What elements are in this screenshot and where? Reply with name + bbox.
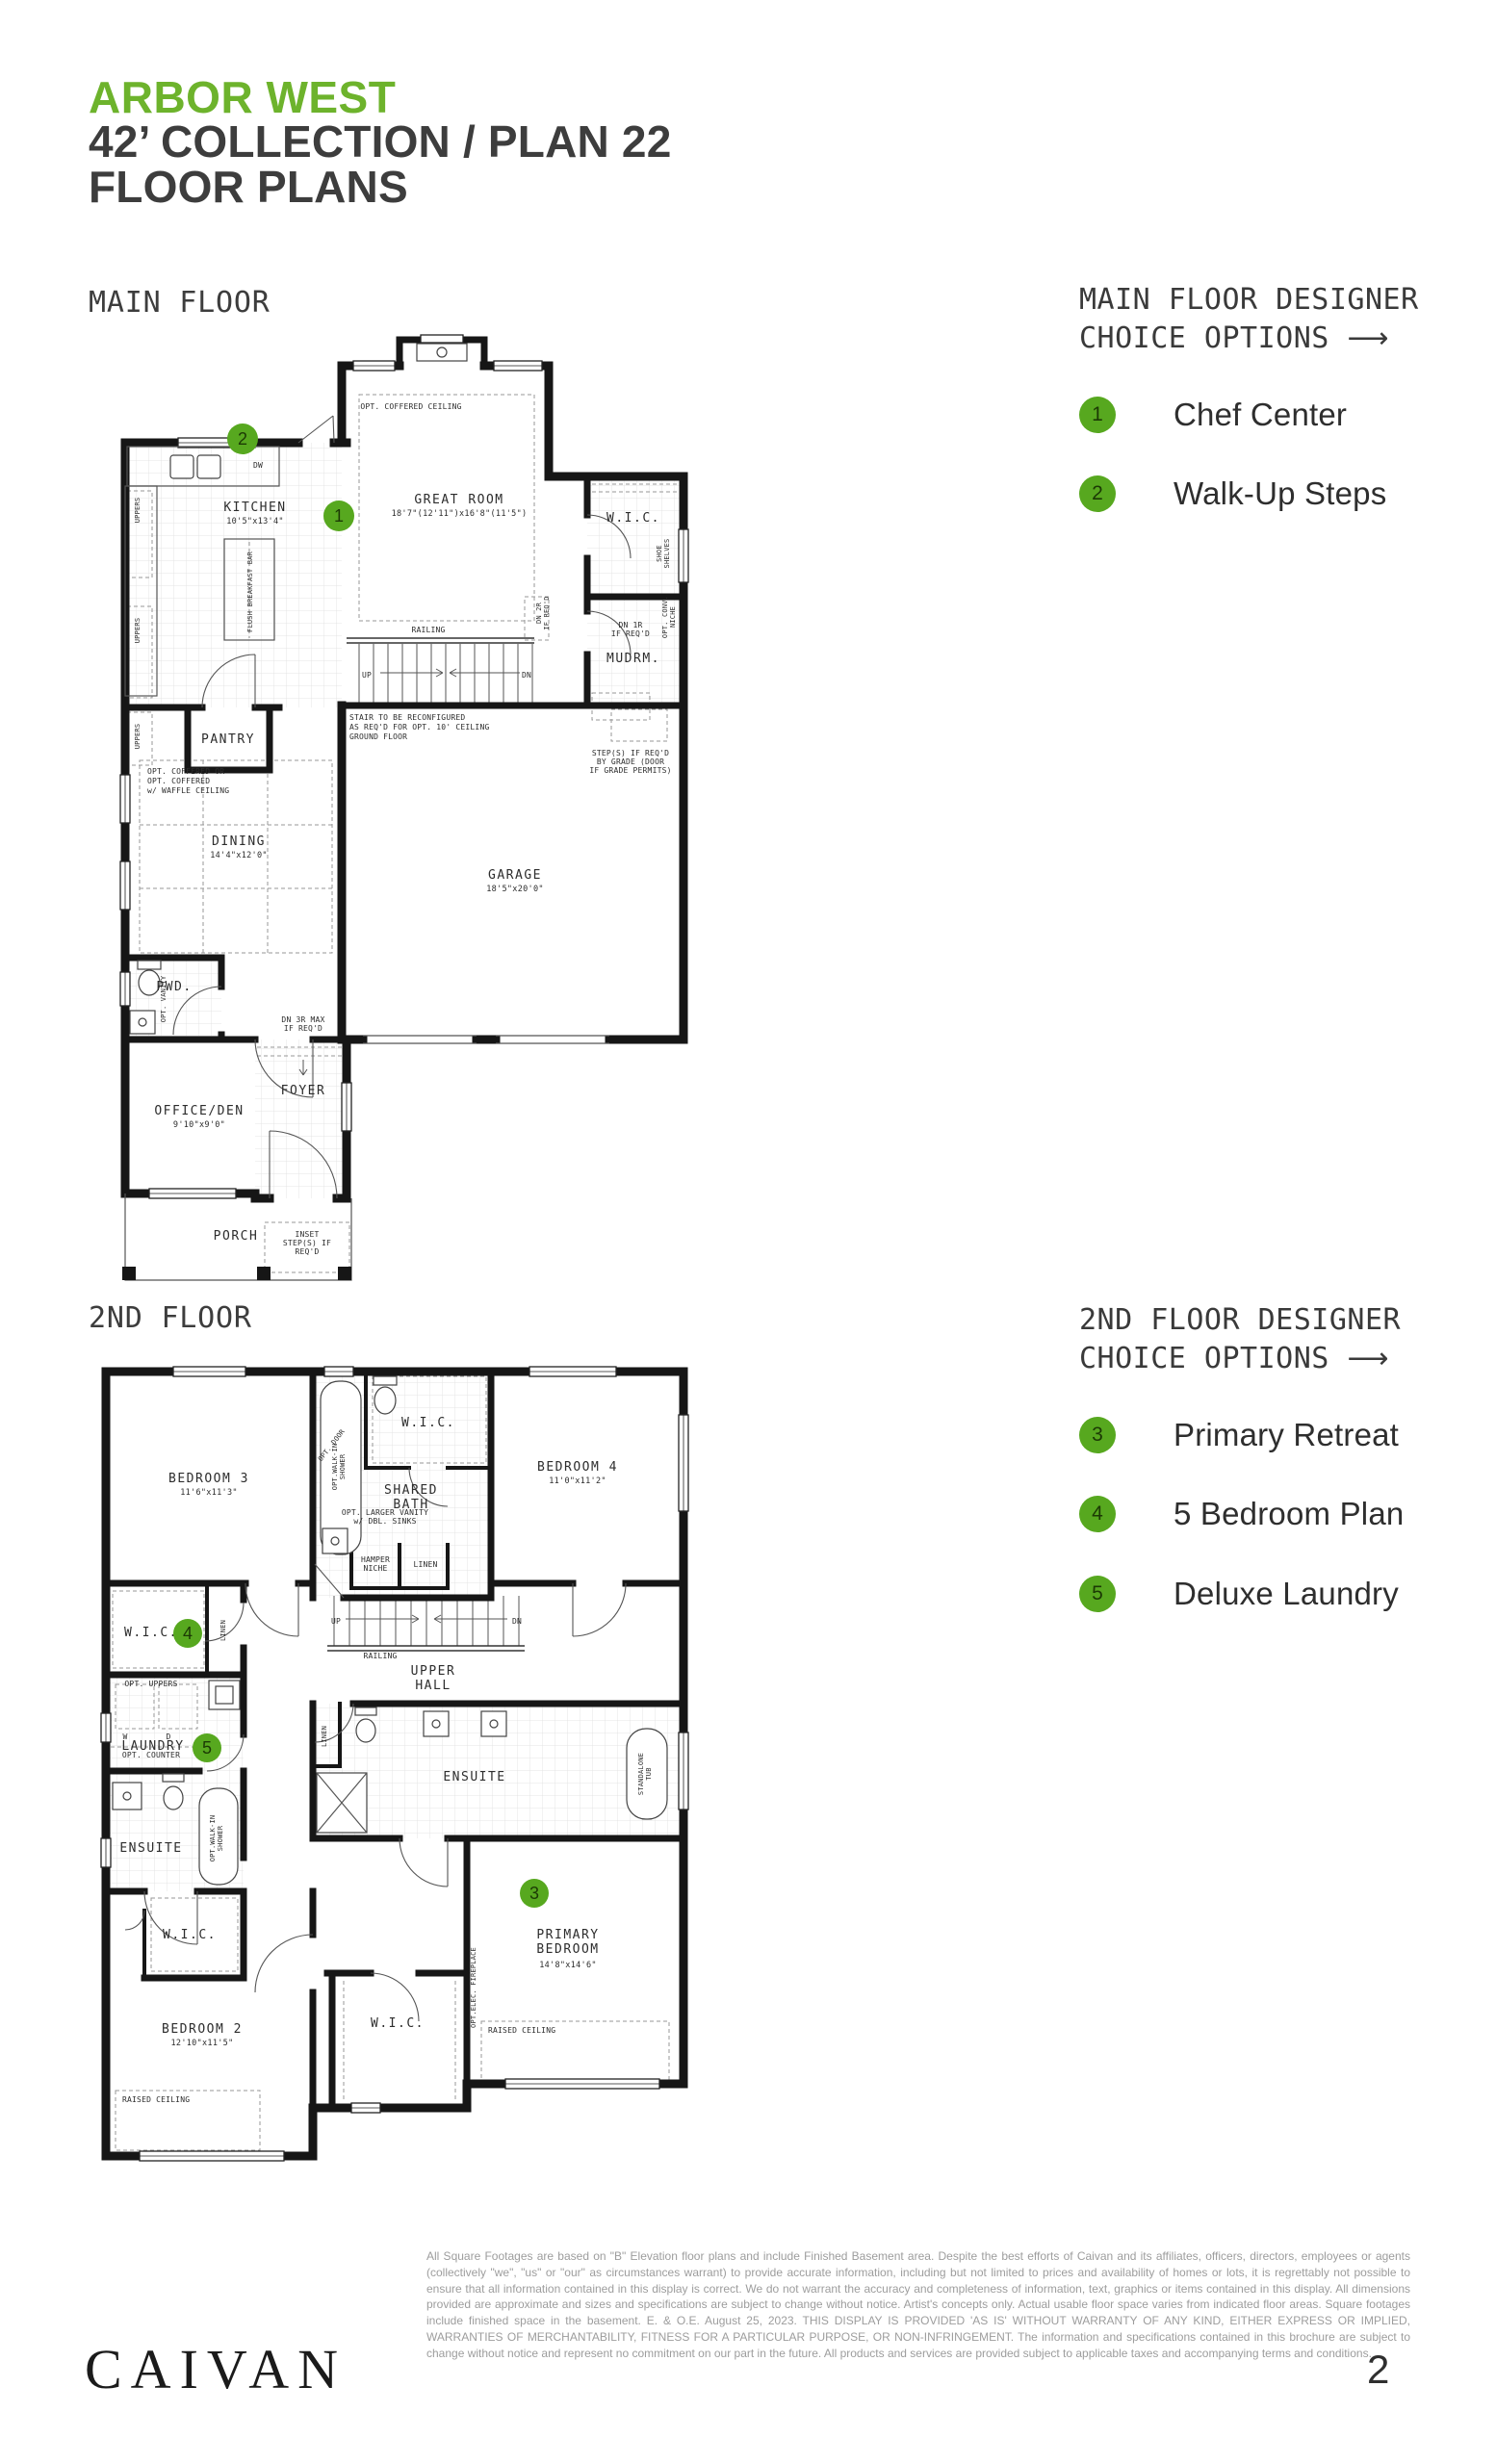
room-label: W.I.C.	[124, 1626, 178, 1640]
vert-label: LINEN	[219, 1620, 227, 1641]
option-marker: 2	[227, 423, 258, 454]
option-number-badge: 4	[1079, 1496, 1116, 1532]
room-label: UPPERHALL	[411, 1664, 456, 1693]
note-label: LINEN	[413, 1560, 437, 1569]
note-label: OPT. LARGER VANITYw/ DBL. SINKS	[342, 1508, 428, 1526]
dim-label: 10'5"x13'4"	[226, 517, 284, 526]
option-label: Chef Center	[1174, 397, 1347, 433]
room-label: BEDROOM 2	[162, 2022, 243, 2037]
room-label: BEDROOM 4	[537, 1460, 618, 1475]
option-marker-number: 2	[238, 429, 247, 449]
page-number: 2	[1367, 2347, 1389, 2393]
option-marker: 4	[173, 1619, 202, 1648]
room-label: W.I.C.	[401, 1416, 455, 1430]
second-floor-plan: BEDROOM 311'6"x11'3"BEDROOM 411'0"x11'2"…	[91, 1357, 698, 2194]
option-number-badge: 1	[1079, 397, 1116, 433]
room-label: PRIMARYBEDROOM	[536, 1928, 599, 1957]
room-label: W.I.C.	[163, 1928, 217, 1942]
page-title: FLOOR PLANS	[89, 165, 671, 210]
room-label: OFFICE/DEN	[154, 1104, 244, 1118]
room-label: GREAT ROOM	[414, 493, 503, 507]
note-label: UP	[331, 1617, 341, 1626]
main-options-heading-line2: CHOICE OPTIONS	[1079, 321, 1329, 355]
note-label: RAILING	[411, 626, 445, 634]
option-number-badge: 3	[1079, 1417, 1116, 1453]
second-options-heading: 2ND FLOOR DESIGNER CHOICE OPTIONS ⟶	[1079, 1301, 1493, 1378]
arrow-icon: ⟶	[1347, 321, 1389, 355]
dim-label: 18'7"(12'11")x16'8"(11'5")	[392, 509, 528, 519]
room-label: PORCH	[214, 1229, 259, 1244]
room-label: ENSUITE	[443, 1770, 505, 1784]
dim-label: 9'10"x9'0"	[173, 1120, 225, 1130]
note-label: HAMPERNICHE	[361, 1555, 390, 1573]
option-label: Deluxe Laundry	[1174, 1576, 1399, 1612]
dim-label: 12'10"x11'5"	[170, 2039, 233, 2048]
room-label: W.I.C.	[371, 2016, 425, 2031]
note-label: STAIR TO BE RECONFIGUREDAS REQ'D FOR OPT…	[349, 713, 489, 741]
room-label: ENSUITE	[119, 1841, 182, 1856]
room-label: FOYER	[281, 1084, 326, 1098]
second-options-heading-line2: CHOICE OPTIONS	[1079, 1342, 1329, 1375]
option-marker: 5	[193, 1733, 221, 1762]
vert-label: UPPERS	[134, 498, 142, 524]
room-label: KITCHEN	[223, 500, 286, 515]
note-label: UP	[362, 671, 372, 680]
option-row-5-bedroom-plan: 4 5 Bedroom Plan	[1079, 1496, 1404, 1532]
brand-name: ARBOR WEST	[89, 75, 671, 119]
note-label: RAISED CEILING	[122, 2095, 190, 2104]
note-label: OPT. COFFERED OROPT. COFFEREDw/ WAFFLE C…	[147, 767, 229, 795]
note-label: OPT. COFFERED CEILING	[360, 402, 461, 411]
dim-label: 11'6"x11'3"	[180, 1488, 238, 1498]
vert-label: UPPERS	[134, 724, 142, 750]
vert-label: OPT.ELEC. FIREPLACE	[470, 1947, 477, 2028]
note-label: DN	[512, 1617, 522, 1626]
second-floor-options: 2ND FLOOR DESIGNER CHOICE OPTIONS ⟶	[1079, 1301, 1493, 1378]
arrow-icon: ⟶	[1347, 1342, 1389, 1375]
room-label: PANTRY	[201, 732, 255, 747]
option-marker-number: 5	[202, 1738, 212, 1758]
main-floor-options: MAIN FLOOR DESIGNER CHOICE OPTIONS ⟶	[1079, 281, 1483, 358]
note-label: OPT. UPPERS	[124, 1680, 177, 1688]
note-label: DN 3R MAXIF REQ'D	[281, 1015, 324, 1033]
option-number-badge: 5	[1079, 1576, 1116, 1612]
option-marker: 3	[520, 1879, 549, 1908]
room-label: W.I.C.	[606, 511, 660, 526]
option-label: Primary Retreat	[1174, 1417, 1399, 1453]
option-row-walk-up-steps: 2 Walk-Up Steps	[1079, 475, 1386, 512]
option-row-primary-retreat: 3 Primary Retreat	[1079, 1417, 1399, 1453]
dim-label: 11'0"x11'2"	[549, 1476, 606, 1486]
note-label: INSETSTEP(S) IFREQ'D	[283, 1230, 331, 1256]
legal-disclaimer: All Square Footages are based on "B" Ele…	[426, 2248, 1410, 2362]
note-label: DN	[522, 671, 531, 680]
vert-label: LINEN	[321, 1726, 328, 1747]
option-marker-number: 1	[334, 506, 344, 526]
option-label: 5 Bedroom Plan	[1174, 1496, 1404, 1532]
option-row-deluxe-laundry: 5 Deluxe Laundry	[1079, 1576, 1399, 1612]
note-label: OPT. COUNTER	[122, 1751, 180, 1759]
second-floor-heading: 2ND FLOOR	[89, 1301, 252, 1335]
note-label: RAILING	[363, 1652, 397, 1660]
main-floor-heading: MAIN FLOOR	[89, 286, 271, 320]
main-floor-plan: KITCHEN10'5"x13'4"GREAT ROOM18'7"(12'11"…	[111, 322, 698, 1295]
vert-label: FLUSH BREAKFAST BAR	[246, 551, 254, 631]
vert-label: OPT. VANITY	[160, 975, 168, 1022]
note-label: RAISED CEILING	[488, 2026, 555, 2035]
dim-label: 14'8"x14'6"	[539, 1961, 597, 1970]
header: ARBOR WEST 42’ COLLECTION / PLAN 22 FLOO…	[89, 75, 671, 210]
caivan-logo: CAIVAN	[85, 2337, 347, 2401]
option-marker: 1	[323, 500, 354, 531]
option-marker-number: 3	[529, 1884, 539, 1903]
stairs	[327, 1596, 525, 1651]
room-label: MUDRM.	[606, 652, 660, 666]
room-label: BEDROOM 3	[168, 1472, 249, 1486]
vert-label: DN 2RIF REQ'D	[535, 596, 551, 629]
room-label: GARAGE	[488, 868, 542, 883]
option-label: Walk-Up Steps	[1174, 475, 1386, 512]
floor-tiles	[125, 443, 684, 1198]
dim-label: 18'5"x20'0"	[486, 885, 544, 894]
main-options-heading: MAIN FLOOR DESIGNER CHOICE OPTIONS ⟶	[1079, 281, 1483, 358]
brochure-page: ARBOR WEST 42’ COLLECTION / PLAN 22 FLOO…	[0, 0, 1496, 2464]
room-label: DINING	[212, 834, 266, 849]
option-row-chef-center: 1 Chef Center	[1079, 397, 1347, 433]
note-label: STEP(S) IF REQ'DBY GRADE (DOORIF GRADE P…	[589, 749, 671, 775]
second-options-heading-line1: 2ND FLOOR DESIGNER	[1079, 1303, 1401, 1337]
collection-title: 42’ COLLECTION / PLAN 22	[89, 119, 671, 165]
note-label: W	[122, 1732, 127, 1741]
dim-label: 14'4"x12'0"	[210, 851, 268, 860]
note-label: DW	[253, 461, 263, 470]
main-options-heading-line1: MAIN FLOOR DESIGNER	[1079, 283, 1419, 317]
vert-label: UPPERS	[134, 618, 142, 644]
option-marker-number: 4	[183, 1624, 193, 1643]
option-number-badge: 2	[1079, 475, 1116, 512]
note-label: D	[166, 1732, 170, 1741]
